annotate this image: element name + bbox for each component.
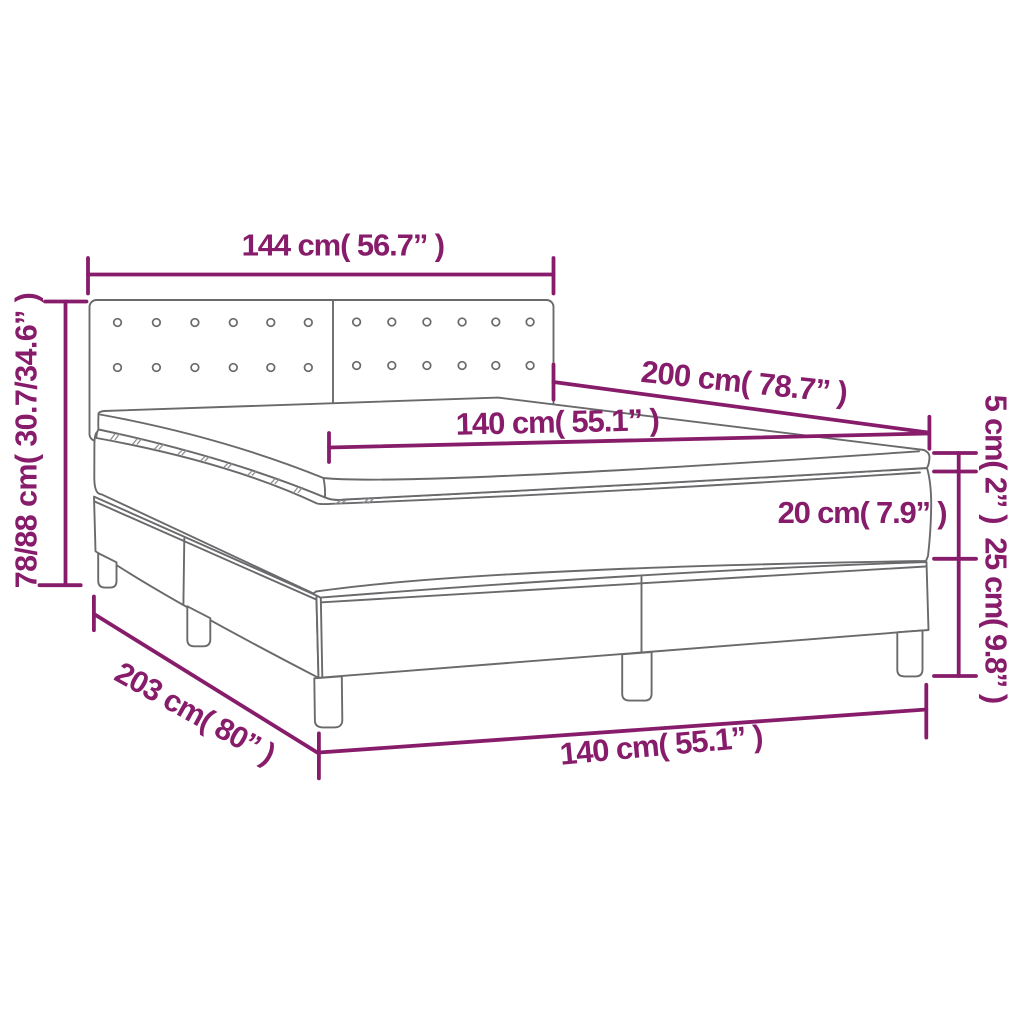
svg-text:140 cm( 55.1” ): 140 cm( 55.1” ) [455, 402, 659, 442]
svg-text:5 cm( 2” ): 5 cm( 2” ) [979, 395, 1014, 524]
svg-text:144 cm( 56.7” ): 144 cm( 56.7” ) [242, 228, 444, 263]
svg-text:20 cm( 7.9” ): 20 cm( 7.9” ) [778, 495, 947, 530]
svg-text:78/88 cm( 30.7/34.6” ): 78/88 cm( 30.7/34.6” ) [10, 293, 44, 588]
svg-text:25 cm( 9.8” ): 25 cm( 9.8” ) [979, 537, 1014, 703]
